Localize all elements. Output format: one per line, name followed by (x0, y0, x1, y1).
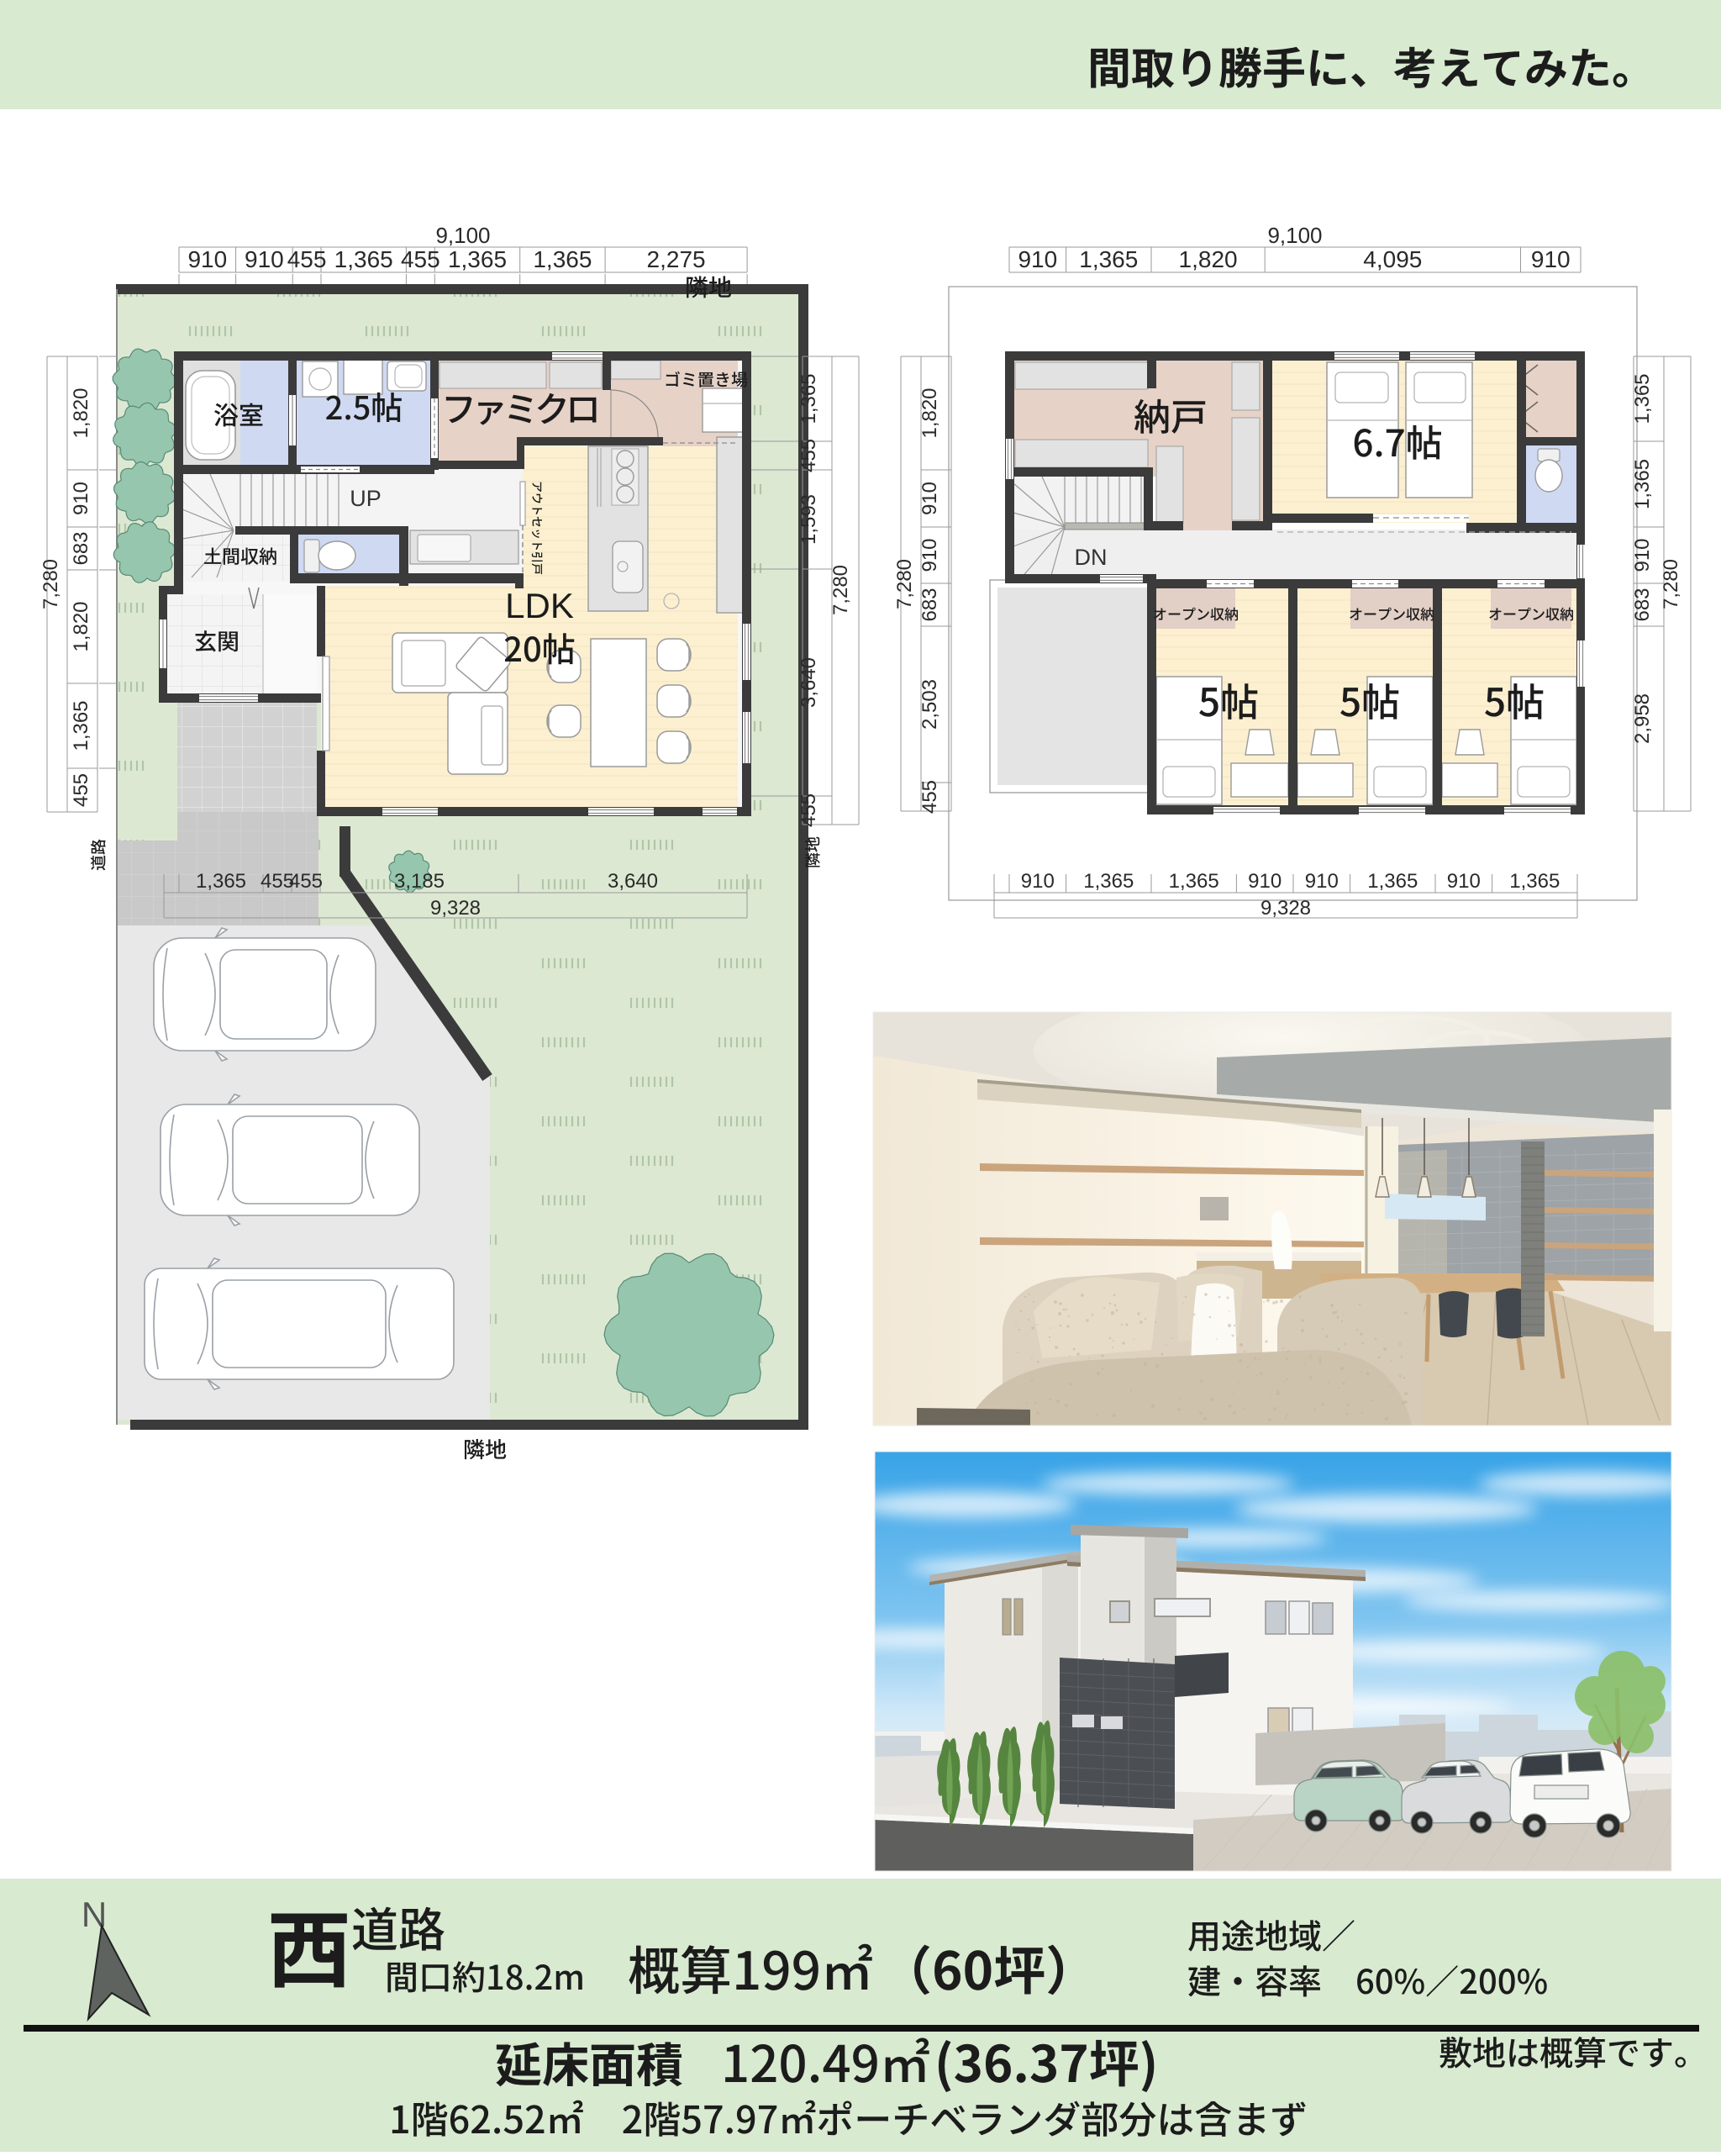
svg-text:910: 910 (1021, 870, 1055, 893)
svg-text:1,365: 1,365 (1367, 870, 1418, 893)
svg-text:910: 910 (918, 482, 941, 515)
svg-text:2,275: 2,275 (647, 246, 706, 272)
svg-text:455: 455 (289, 870, 323, 893)
svg-text:1,365: 1,365 (1079, 246, 1138, 272)
svg-text:910: 910 (1305, 870, 1339, 893)
svg-text:1,820: 1,820 (918, 387, 941, 438)
svg-text:9,100: 9,100 (435, 223, 490, 248)
svg-text:7,280: 7,280 (1660, 559, 1682, 609)
svg-text:1,820: 1,820 (1179, 246, 1238, 272)
svg-text:3,185: 3,185 (394, 870, 445, 893)
svg-text:1,365: 1,365 (1083, 870, 1134, 893)
svg-text:455: 455 (70, 773, 92, 807)
svg-text:455: 455 (918, 780, 941, 814)
svg-text:9,328: 9,328 (430, 897, 481, 920)
svg-text:4,095: 4,095 (1363, 246, 1422, 272)
svg-text:2,503: 2,503 (918, 679, 941, 730)
svg-text:910: 910 (1447, 870, 1481, 893)
svg-text:455: 455 (797, 793, 820, 827)
svg-text:UP: UP (350, 486, 382, 511)
svg-text:LDK: LDK (505, 586, 574, 625)
svg-text:910: 910 (918, 538, 941, 572)
svg-text:9,100: 9,100 (1267, 223, 1322, 248)
svg-text:455: 455 (287, 246, 327, 272)
svg-text:683: 683 (918, 588, 941, 621)
svg-text:1,365: 1,365 (196, 870, 246, 893)
svg-text:DN: DN (1075, 545, 1108, 570)
svg-text:910: 910 (1531, 246, 1571, 272)
svg-text:9,328: 9,328 (1260, 897, 1311, 920)
svg-text:1,365: 1,365 (533, 246, 592, 272)
svg-text:1,820: 1,820 (70, 601, 92, 651)
svg-text:455: 455 (797, 439, 820, 472)
svg-text:1,593: 1,593 (797, 494, 820, 545)
svg-text:1,365: 1,365 (1631, 373, 1654, 424)
svg-text:910: 910 (70, 482, 92, 515)
svg-text:1,365: 1,365 (1169, 870, 1219, 893)
svg-text:3,640: 3,640 (797, 657, 820, 708)
svg-text:910: 910 (187, 246, 227, 272)
svg-text:455: 455 (401, 246, 440, 272)
svg-text:1,820: 1,820 (70, 387, 92, 438)
svg-text:1,365: 1,365 (70, 700, 92, 751)
svg-text:910: 910 (245, 246, 284, 272)
svg-text:910: 910 (1018, 246, 1057, 272)
svg-text:683: 683 (1631, 588, 1654, 621)
svg-text:1,365: 1,365 (334, 246, 393, 272)
svg-text:7,280: 7,280 (893, 559, 916, 609)
svg-text:683: 683 (70, 531, 92, 565)
svg-text:1,365: 1,365 (797, 373, 820, 424)
svg-text:7,280: 7,280 (39, 559, 62, 609)
svg-text:2,958: 2,958 (1631, 693, 1654, 744)
svg-text:1,365: 1,365 (1631, 459, 1654, 509)
svg-text:1,365: 1,365 (1509, 870, 1560, 893)
svg-text:7,280: 7,280 (829, 565, 852, 615)
svg-text:910: 910 (1248, 870, 1282, 893)
svg-text:1,365: 1,365 (448, 246, 507, 272)
svg-text:3,640: 3,640 (608, 870, 658, 893)
svg-text:910: 910 (1631, 538, 1654, 572)
